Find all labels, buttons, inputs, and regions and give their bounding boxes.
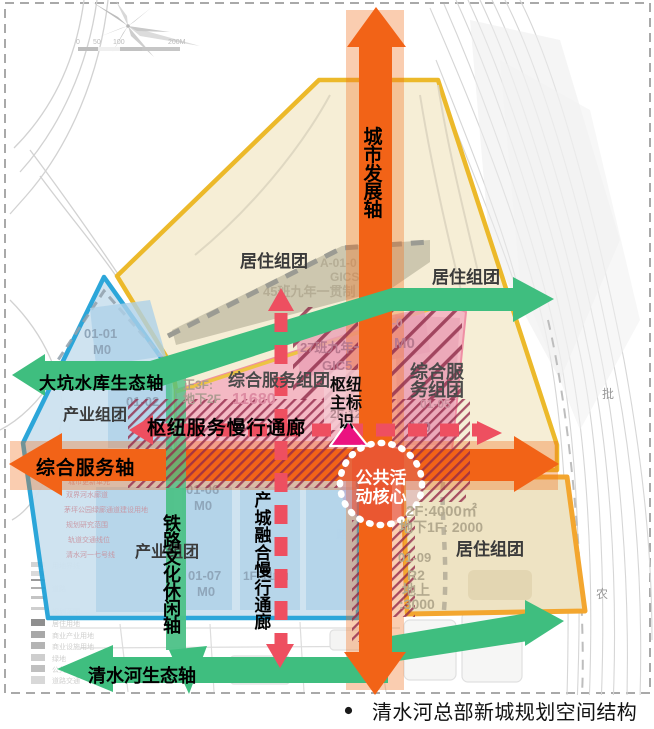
svg-text:慢: 慢 [255,560,273,580]
svg-text:清水河总部新城规划空间结构: 清水河总部新城规划空间结构 [372,701,637,724]
svg-text:居住组团: 居住组团 [432,267,500,287]
svg-text:农: 农 [596,587,608,601]
svg-text:行: 行 [254,578,272,598]
svg-text:茅坪公园绿廊通道建设用地: 茅坪公园绿廊通道建设用地 [64,505,148,514]
svg-text:主标: 主标 [330,393,362,412]
svg-text:M0: M0 [194,498,212,513]
svg-text:枢纽: 枢纽 [330,375,362,394]
svg-text:综合服务组团: 综合服务组团 [228,370,330,390]
svg-text:规划研究范围: 规划研究范围 [66,520,108,529]
svg-text:M0: M0 [93,342,111,357]
svg-text:轨道交通线位: 轨道交通线位 [68,535,110,544]
svg-text:商业设施用地: 商业设施用地 [52,642,94,651]
svg-text:清水河生态轴: 清水河生态轴 [88,665,196,686]
svg-text:M0: M0 [394,335,415,352]
svg-text:地下1F: 2000: 地下1F: 2000 [399,519,483,535]
svg-text:批: 批 [602,386,614,401]
svg-text:01-01: 01-01 [84,326,117,341]
svg-text:绿地: 绿地 [52,654,66,663]
svg-text:综合服: 综合服 [410,361,465,382]
svg-text:2F:4000㎡: 2F:4000㎡ [406,502,477,520]
svg-text:大坑水库生态轴: 大坑水库生态轴 [39,373,164,393]
svg-text:公共活: 公共活 [356,468,407,488]
svg-text:11680: 11680 [232,391,276,408]
svg-text:务组团: 务组团 [410,379,464,400]
svg-text:轴: 轴 [363,198,382,221]
svg-text:廊: 廊 [255,612,272,632]
svg-text:融: 融 [255,526,272,545]
svg-text:双界河水廊道: 双界河水廊道 [66,490,108,499]
svg-text:综合服务轴: 综合服务轴 [36,456,135,479]
svg-text:0: 0 [76,39,80,46]
svg-text:50: 50 [93,39,101,46]
svg-text:居住用地: 居住用地 [52,619,80,628]
svg-text:R2: R2 [407,567,425,583]
svg-text:清水河一七号线: 清水河一七号线 [66,550,115,559]
svg-text:道路交通: 道路交通 [52,676,80,685]
svg-text:01-09: 01-09 [398,550,431,565]
svg-text:200M: 200M [168,39,186,46]
svg-text:产: 产 [255,490,272,510]
svg-text:01-07: 01-07 [188,568,221,583]
svg-text:动核心: 动核心 [356,487,407,507]
svg-text:正3F:: 正3F: [183,378,213,392]
svg-text:枢纽服务慢行通廊: 枢纽服务慢行通廊 [147,416,306,439]
svg-text:轴: 轴 [163,615,181,636]
svg-text:M0: M0 [197,584,215,599]
svg-text::3000: :3000 [399,596,435,612]
svg-text:100: 100 [113,39,125,46]
svg-text:识: 识 [338,413,354,431]
svg-text:商业产业用地: 商业产业用地 [52,631,94,640]
svg-text:居住组团: 居住组团 [240,251,308,271]
svg-text:产业组团: 产业组团 [63,405,127,424]
svg-text:合: 合 [255,543,273,563]
svg-text:市: 市 [363,143,382,166]
svg-text:地下2F: 地下2F [183,391,221,406]
svg-text:居住组团: 居住组团 [456,539,524,559]
